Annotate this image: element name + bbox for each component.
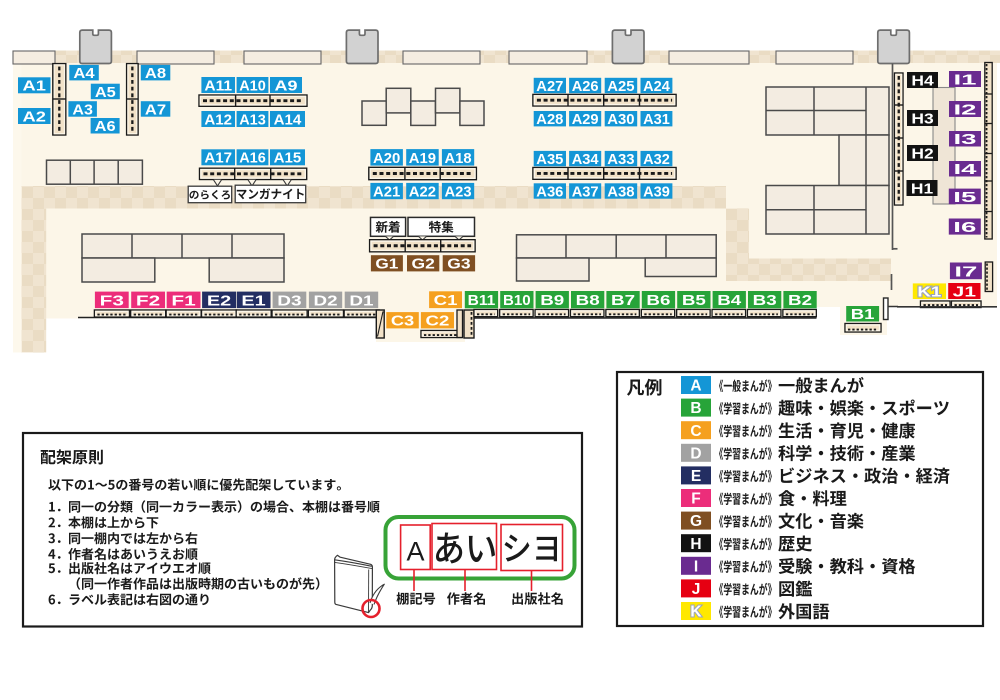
svg-text:A11: A11 bbox=[204, 77, 232, 94]
svg-text:B: B bbox=[690, 400, 701, 417]
svg-text:A36: A36 bbox=[536, 183, 563, 200]
svg-text:H1: H1 bbox=[911, 180, 933, 197]
svg-text:B4: B4 bbox=[717, 292, 742, 309]
svg-text:A35: A35 bbox=[536, 151, 563, 168]
svg-text:B10: B10 bbox=[503, 292, 531, 309]
svg-text:A34: A34 bbox=[572, 151, 599, 168]
svg-text:A32: A32 bbox=[643, 151, 670, 168]
svg-text:A12: A12 bbox=[204, 111, 232, 128]
svg-text:B2: B2 bbox=[788, 292, 812, 309]
svg-text:J1: J1 bbox=[953, 283, 976, 300]
svg-text:D: D bbox=[690, 445, 701, 462]
svg-text:B7: B7 bbox=[611, 292, 635, 309]
svg-text:A18: A18 bbox=[445, 150, 472, 167]
svg-text:I7: I7 bbox=[954, 263, 977, 280]
svg-text:H3: H3 bbox=[911, 110, 933, 127]
svg-text:A10: A10 bbox=[239, 77, 266, 94]
svg-text:B5: B5 bbox=[682, 292, 706, 309]
svg-text:F3: F3 bbox=[100, 292, 124, 309]
svg-text:I1: I1 bbox=[954, 71, 977, 88]
svg-text:A7: A7 bbox=[145, 101, 166, 118]
svg-text:D2: D2 bbox=[314, 292, 338, 309]
svg-text:B6: B6 bbox=[646, 292, 670, 309]
svg-text:E2: E2 bbox=[207, 292, 231, 309]
svg-text:B11: B11 bbox=[468, 292, 496, 309]
svg-text:A33: A33 bbox=[607, 151, 634, 168]
svg-text:A13: A13 bbox=[239, 111, 266, 128]
svg-text:B9: B9 bbox=[540, 292, 564, 309]
svg-text:B3: B3 bbox=[753, 292, 777, 309]
svg-text:I5: I5 bbox=[953, 189, 976, 206]
svg-text:I4: I4 bbox=[954, 161, 978, 178]
svg-text:A: A bbox=[406, 537, 424, 567]
svg-text:C2: C2 bbox=[426, 313, 450, 330]
svg-text:H: H bbox=[690, 536, 701, 553]
svg-text:A38: A38 bbox=[607, 183, 634, 200]
svg-text:A27: A27 bbox=[536, 78, 563, 95]
svg-text:A14: A14 bbox=[274, 111, 302, 128]
svg-text:G: G bbox=[690, 513, 702, 530]
svg-text:A4: A4 bbox=[73, 65, 95, 82]
svg-text:I3: I3 bbox=[954, 131, 977, 148]
svg-text:A24: A24 bbox=[643, 78, 670, 95]
svg-text:A22: A22 bbox=[409, 184, 436, 201]
svg-text:H4: H4 bbox=[911, 72, 934, 89]
svg-text:B8: B8 bbox=[576, 292, 600, 309]
svg-text:A26: A26 bbox=[572, 78, 599, 95]
svg-text:A17: A17 bbox=[204, 150, 232, 167]
svg-text:A: A bbox=[690, 378, 701, 395]
svg-text:B1: B1 bbox=[851, 306, 875, 323]
svg-text:F1: F1 bbox=[171, 292, 195, 309]
svg-text:D3: D3 bbox=[277, 292, 301, 309]
svg-text:G1: G1 bbox=[375, 256, 398, 273]
svg-text:A1: A1 bbox=[23, 78, 46, 95]
svg-text:A3: A3 bbox=[72, 101, 93, 118]
svg-text:A19: A19 bbox=[409, 150, 436, 167]
svg-text:D1: D1 bbox=[349, 292, 373, 309]
svg-text:C3: C3 bbox=[391, 313, 414, 330]
svg-text:A30: A30 bbox=[607, 111, 634, 128]
svg-text:F: F bbox=[691, 491, 700, 508]
svg-text:A5: A5 bbox=[95, 84, 116, 101]
svg-text:E: E bbox=[691, 468, 701, 485]
svg-text:A6: A6 bbox=[95, 118, 116, 135]
svg-text:A39: A39 bbox=[643, 183, 670, 200]
svg-text:A2: A2 bbox=[23, 108, 46, 125]
svg-text:A9: A9 bbox=[275, 77, 298, 94]
svg-text:J: J bbox=[692, 581, 701, 598]
svg-text:A21: A21 bbox=[373, 184, 400, 201]
svg-text:A23: A23 bbox=[445, 184, 472, 201]
svg-text:I: I bbox=[694, 558, 698, 575]
svg-text:A25: A25 bbox=[607, 78, 634, 95]
svg-text:C1: C1 bbox=[434, 292, 458, 309]
svg-text:A29: A29 bbox=[572, 111, 599, 128]
svg-text:A15: A15 bbox=[274, 150, 302, 167]
svg-text:A20: A20 bbox=[373, 150, 400, 167]
svg-text:G3: G3 bbox=[447, 256, 470, 273]
svg-text:K1: K1 bbox=[917, 284, 941, 301]
svg-text:E1: E1 bbox=[241, 292, 265, 309]
svg-text:H2: H2 bbox=[911, 145, 933, 162]
svg-text:K: K bbox=[690, 604, 702, 621]
svg-text:A37: A37 bbox=[572, 183, 599, 200]
svg-text:G2: G2 bbox=[412, 256, 435, 273]
svg-text:A16: A16 bbox=[239, 150, 266, 167]
svg-text:C: C bbox=[690, 423, 701, 440]
svg-text:A28: A28 bbox=[536, 111, 563, 128]
svg-text:A8: A8 bbox=[145, 65, 166, 82]
svg-text:I6: I6 bbox=[953, 219, 976, 236]
svg-text:I2: I2 bbox=[954, 101, 977, 118]
svg-text:F2: F2 bbox=[136, 292, 160, 309]
svg-text:A31: A31 bbox=[643, 111, 670, 128]
